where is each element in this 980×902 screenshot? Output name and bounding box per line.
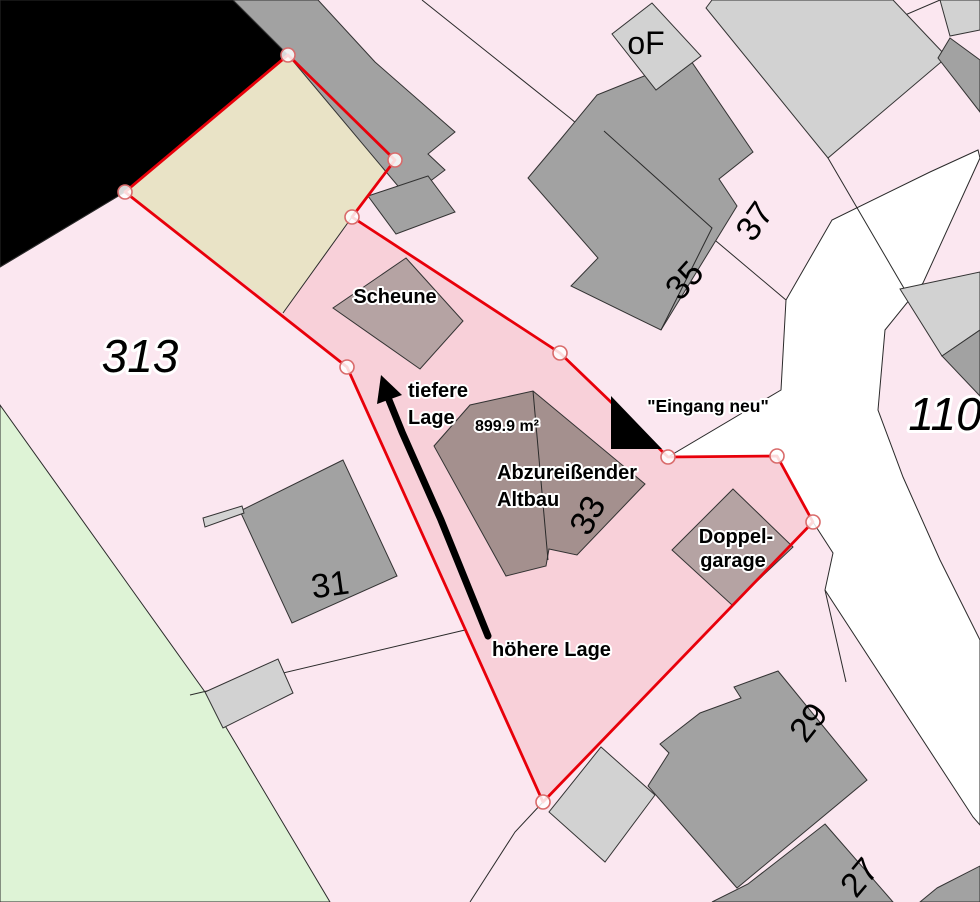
label-garage-line2: garage (700, 550, 766, 572)
cadastral-map-view: 313 110 oF 35 37 33 31 29 27 Scheune Abz… (0, 0, 980, 902)
label-area-value: 899.9 m² (475, 418, 539, 435)
house-number-31: 31 (309, 564, 352, 607)
house-number-oF: oF (627, 25, 664, 61)
vertex-marker (340, 360, 354, 374)
label-garage-line1: Doppel- (699, 526, 773, 548)
vertex-marker (281, 48, 295, 62)
label-eingang-neu: "Eingang neu" (647, 396, 769, 416)
vertex-marker (770, 449, 784, 463)
vertex-marker (118, 185, 132, 199)
parcel-number-110: 110 (908, 388, 980, 440)
vertex-marker (388, 153, 402, 167)
vertex-marker (806, 515, 820, 529)
vertex-marker (553, 346, 567, 360)
label-scheune: Scheune (353, 286, 436, 308)
label-altbau-line2: Altbau (497, 489, 559, 511)
label-tiefere-lage-line2: Lage (408, 407, 455, 429)
label-altbau-line1: Abzureißender (497, 462, 637, 484)
label-tiefere-lage-line1: tiefere (408, 380, 468, 402)
cadastral-map-canvas[interactable]: 313 110 oF 35 37 33 31 29 27 Scheune Abz… (0, 0, 980, 902)
parcel-number-313: 313 (102, 330, 179, 382)
vertex-marker (345, 210, 359, 224)
label-hoehere-lage: höhere Lage (492, 639, 611, 661)
vertex-marker (661, 450, 675, 464)
vertex-marker (536, 795, 550, 809)
